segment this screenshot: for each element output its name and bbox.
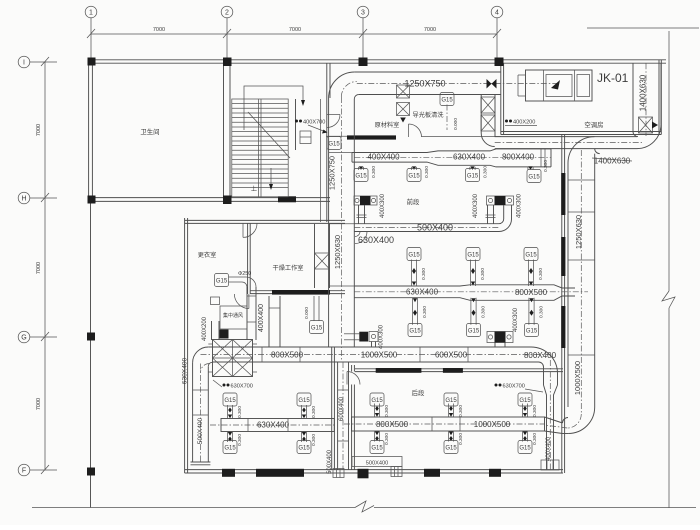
svg-text:Φ250: Φ250 <box>238 271 251 277</box>
svg-text:7000: 7000 <box>36 262 42 274</box>
svg-text:3: 3 <box>361 10 365 17</box>
svg-text:F: F <box>22 468 26 475</box>
svg-text:4: 4 <box>495 10 499 17</box>
svg-text:0.300: 0.300 <box>532 433 538 445</box>
svg-text:7000: 7000 <box>424 27 436 33</box>
svg-text:400X300: 400X300 <box>380 193 386 218</box>
svg-text:800X500: 800X500 <box>271 351 304 360</box>
svg-text:500X400: 500X400 <box>197 417 204 444</box>
svg-text:7000: 7000 <box>153 27 165 33</box>
svg-text:集中通风: 集中通风 <box>223 312 243 319</box>
svg-text:I: I <box>23 60 25 67</box>
svg-text:500X400: 500X400 <box>417 223 453 233</box>
svg-text:0.000: 0.000 <box>304 307 310 319</box>
svg-text:400X400: 400X400 <box>546 436 552 461</box>
svg-text:630X400: 630X400 <box>257 421 290 430</box>
svg-text:630X700: 630X700 <box>231 384 253 390</box>
svg-text:0.300: 0.300 <box>422 306 428 318</box>
svg-text:干燥工作室: 干燥工作室 <box>273 264 304 272</box>
svg-text:0.300: 0.300 <box>237 434 243 446</box>
svg-text:400X400: 400X400 <box>258 304 265 332</box>
svg-text:0.300: 0.300 <box>384 433 390 445</box>
svg-text:400X400: 400X400 <box>367 152 400 161</box>
svg-text:0.300: 0.300 <box>371 166 377 178</box>
svg-text:前段: 前段 <box>407 197 420 206</box>
svg-text:JK-01: JK-01 <box>597 71 629 85</box>
svg-text:400X200: 400X200 <box>513 120 535 126</box>
svg-text:1000X500: 1000X500 <box>361 351 398 360</box>
svg-text:630X400: 630X400 <box>182 357 189 384</box>
svg-text:0.300: 0.300 <box>532 405 538 417</box>
svg-text:0.300: 0.300 <box>424 166 430 178</box>
svg-text:630X400: 630X400 <box>406 287 439 296</box>
svg-text:800X400: 800X400 <box>502 153 535 162</box>
svg-text:1000X500: 1000X500 <box>573 361 582 395</box>
svg-text:1250X750: 1250X750 <box>328 156 337 190</box>
svg-text:800X500: 800X500 <box>515 288 548 297</box>
svg-text:400X200: 400X200 <box>202 316 208 341</box>
svg-text:600X500: 600X500 <box>435 351 468 360</box>
svg-text:7000: 7000 <box>289 27 301 33</box>
svg-text:0.300: 0.300 <box>543 160 549 172</box>
svg-text:上: 上 <box>251 185 257 193</box>
svg-text:H: H <box>21 196 26 203</box>
svg-text:导光板清洗: 导光板清洗 <box>413 111 445 119</box>
svg-text:0.300: 0.300 <box>421 268 427 280</box>
svg-text:0.300: 0.300 <box>538 268 544 280</box>
svg-text:600X400: 600X400 <box>339 396 345 421</box>
svg-text:0.300: 0.300 <box>480 268 486 280</box>
svg-text:空调房: 空调房 <box>584 120 603 129</box>
svg-text:400X700: 400X700 <box>303 120 325 126</box>
svg-text:500X400: 500X400 <box>366 461 388 467</box>
svg-text:更衣室: 更衣室 <box>198 251 217 259</box>
svg-text:0.300: 0.300 <box>237 406 243 418</box>
svg-text:0.300: 0.300 <box>458 405 464 417</box>
svg-text:卫生间: 卫生间 <box>140 127 159 136</box>
svg-text:1250X630: 1250X630 <box>333 235 342 269</box>
svg-text:后段: 后段 <box>412 388 425 397</box>
svg-text:0.300: 0.300 <box>458 433 464 445</box>
svg-text:630X700: 630X700 <box>503 384 525 390</box>
svg-text:0.000: 0.000 <box>453 118 459 130</box>
svg-text:500X400: 500X400 <box>327 449 333 474</box>
svg-text:1000X500: 1000X500 <box>474 420 511 429</box>
svg-text:原材料室: 原材料室 <box>375 121 400 129</box>
svg-text:1400X630: 1400X630 <box>594 157 631 166</box>
svg-text:400X300: 400X300 <box>517 193 523 218</box>
svg-text:1400X630: 1400X630 <box>639 74 648 111</box>
svg-text:7000: 7000 <box>36 398 42 410</box>
svg-text:630X400: 630X400 <box>453 153 486 162</box>
svg-text:G: G <box>21 335 26 342</box>
svg-text:0.300: 0.300 <box>483 166 489 178</box>
svg-text:0.300: 0.300 <box>311 434 317 446</box>
svg-text:0.300: 0.300 <box>481 306 487 318</box>
svg-text:2: 2 <box>225 10 229 17</box>
svg-text:400X300: 400X300 <box>379 324 385 349</box>
svg-text:800X500: 800X500 <box>376 420 409 429</box>
svg-text:7000: 7000 <box>36 124 42 136</box>
svg-text:1: 1 <box>89 10 93 17</box>
svg-text:0.300: 0.300 <box>539 306 545 318</box>
svg-text:400X300: 400X300 <box>513 307 519 332</box>
svg-text:0.300: 0.300 <box>384 405 390 417</box>
svg-text:400X300: 400X300 <box>473 193 479 218</box>
svg-text:1250X630: 1250X630 <box>574 215 583 249</box>
svg-text:1250X750: 1250X750 <box>404 79 445 89</box>
svg-text:0.300: 0.300 <box>311 406 317 418</box>
svg-text:800X400: 800X400 <box>524 351 557 360</box>
